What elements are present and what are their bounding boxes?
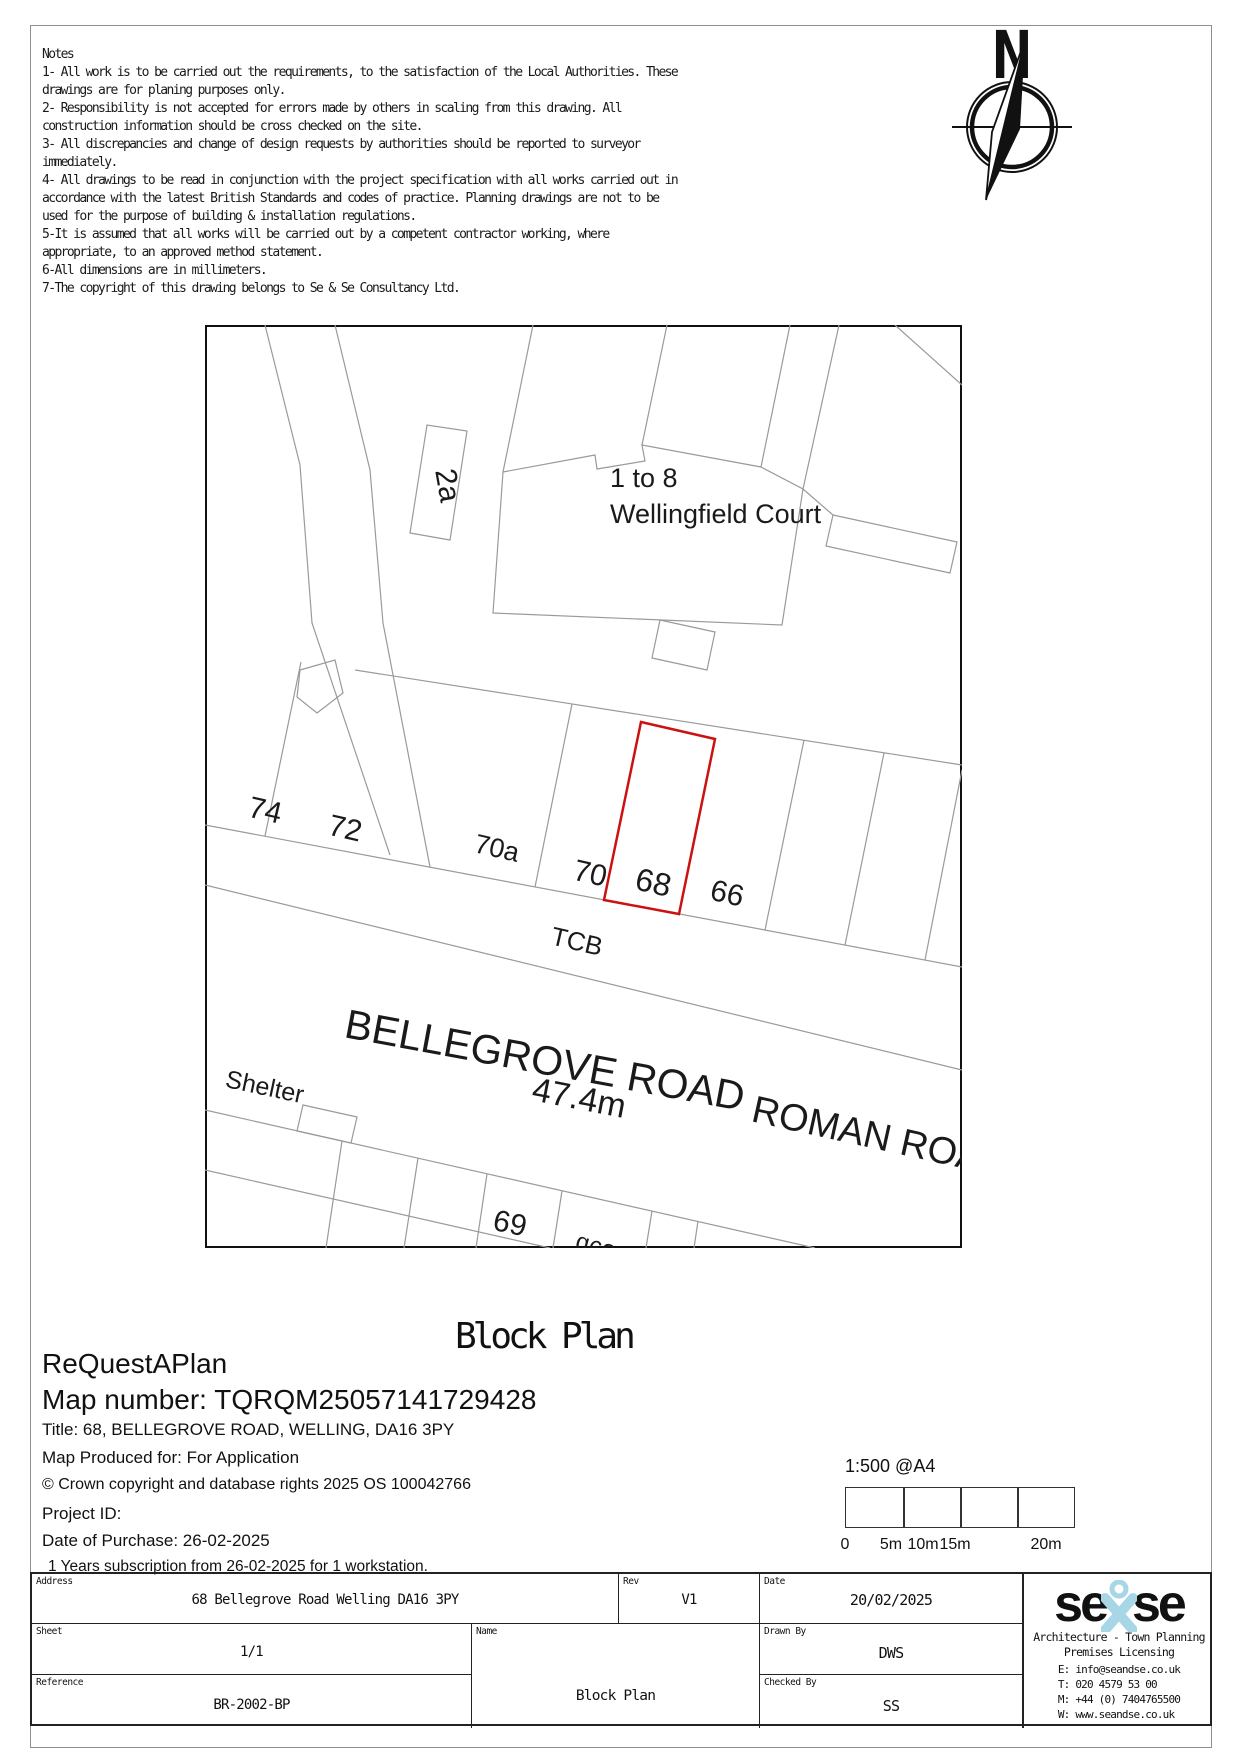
- notes-title: Notes: [42, 46, 742, 64]
- address-value: 68 Bellegrove Road Welling DA16 3PY: [32, 1592, 618, 1608]
- note-line: appropriate, to an approved method state…: [42, 244, 742, 262]
- reference-cell: Reference BR-2002-BP: [32, 1675, 472, 1728]
- note-line: accordance with the latest British Stand…: [42, 190, 742, 208]
- address-cell: Address 68 Bellegrove Road Welling DA16 …: [32, 1574, 619, 1624]
- note-line: 1- All work is to be carried out the req…: [42, 64, 742, 82]
- scale-bar: [845, 1487, 1075, 1528]
- purchase-date-line: Date of Purchase: 26-02-2025: [42, 1531, 270, 1551]
- notes-block: Notes 1- All work is to be carried out t…: [42, 46, 742, 298]
- map-label-70a: 70a: [472, 829, 524, 869]
- scale-caption: 1:500 @A4: [845, 1456, 935, 1477]
- map-label-69: 69: [490, 1204, 530, 1243]
- note-line: construction information should be cross…: [42, 118, 742, 136]
- produced-for-line: Map Produced for: For Application: [42, 1448, 299, 1468]
- logo-mobile: M: +44 (0) 7404765500: [1058, 1692, 1180, 1707]
- rev-value: V1: [619, 1592, 759, 1608]
- scale-bar-divider: [960, 1488, 962, 1527]
- scale-bar-divider: [1017, 1488, 1019, 1527]
- rev-cell: Rev V1: [619, 1574, 760, 1624]
- drawn-by-value: DWS: [760, 1644, 1022, 1662]
- date-cell: Date 20/02/2025: [760, 1574, 1022, 1624]
- name-value: Block Plan: [472, 1688, 759, 1704]
- title-block: Address 68 Bellegrove Road Welling DA16 …: [30, 1572, 1212, 1726]
- address-label: Address: [36, 1576, 73, 1587]
- note-line: used for the purpose of building & insta…: [42, 208, 742, 226]
- scale-tick-15m: 15m: [939, 1536, 970, 1554]
- logo-contacts: E: info@seandse.co.uk T: 020 4579 53 00 …: [1058, 1662, 1180, 1722]
- drawn-by-cell: Drawn By DWS: [760, 1624, 1022, 1675]
- note-line: drawings are for planing purposes only.: [42, 82, 742, 100]
- checked-by-cell: Checked By SS: [760, 1675, 1022, 1728]
- reference-label: Reference: [36, 1677, 83, 1688]
- name-label: Name: [476, 1626, 497, 1637]
- logo-phone: T: 020 4579 53 00: [1058, 1677, 1180, 1692]
- date-label: Date: [764, 1576, 785, 1587]
- note-line: 5-It is assumed that all works will be c…: [42, 226, 742, 244]
- note-line: 2- Responsibility is not accepted for er…: [42, 100, 742, 118]
- map-label-66: 66: [707, 874, 747, 914]
- map-label-70: 70: [570, 854, 610, 894]
- company-logo-cell: se se Architecture - Town Planning Premi…: [1022, 1574, 1214, 1728]
- scale-tick-10m: 10m: [907, 1536, 938, 1554]
- scale-tick-5m: 5m: [880, 1536, 902, 1554]
- note-line: 6-All dimensions are in millimeters.: [42, 262, 742, 280]
- drawing-sheet: Notes 1- All work is to be carried out t…: [0, 0, 1240, 1755]
- scale-bar-divider: [903, 1488, 905, 1527]
- seandse-logo: se se: [1054, 1578, 1184, 1630]
- drawing-title: Block Plan: [455, 1316, 632, 1357]
- logo-tagline-2: Premises Licensing: [1064, 1645, 1174, 1660]
- copyright-line: © Crown copyright and database rights 20…: [42, 1476, 471, 1494]
- name-cell: Name Block Plan: [472, 1624, 760, 1728]
- map-label-building: Wellingfield Court: [610, 499, 822, 529]
- note-line: immediately.: [42, 154, 742, 172]
- note-line: 7-The copyright of this drawing belongs …: [42, 280, 742, 298]
- note-line: 4- All drawings to be read in conjunctio…: [42, 172, 742, 190]
- logo-tagline-1: Architecture - Town Planning: [1033, 1630, 1204, 1645]
- logo-web: W: www.seandse.co.uk: [1058, 1707, 1180, 1722]
- site-title-line: Title: 68, BELLEGROVE ROAD, WELLING, DA1…: [42, 1420, 454, 1440]
- map-label-unit-range: 1 to 8: [610, 463, 678, 493]
- logo-ampersand-icon: [1101, 1580, 1137, 1632]
- block-plan-map: 2a 1 to 8 Wellingfield Court 74 72 70a 7…: [205, 325, 962, 1253]
- sheet-label: Sheet: [36, 1626, 62, 1637]
- map-label-shelter: Shelter: [223, 1065, 306, 1109]
- map-label-2a: 2a: [428, 466, 466, 505]
- map-label-road-roman: ROMAN ROAD: [748, 1089, 962, 1187]
- sheet-cell: Sheet 1/1: [32, 1624, 472, 1675]
- map-label-72: 72: [325, 809, 365, 849]
- reference-value: BR-2002-BP: [32, 1697, 471, 1713]
- drawn-by-label: Drawn By: [764, 1626, 806, 1637]
- sheet-value: 1/1: [32, 1644, 471, 1660]
- logo-email: E: info@seandse.co.uk: [1058, 1662, 1180, 1677]
- map-number: Map number: TQRQM25057141729428: [42, 1384, 536, 1416]
- logo-word-right: se: [1132, 1578, 1184, 1630]
- logo-word-left: se: [1054, 1578, 1106, 1630]
- checked-by-label: Checked By: [764, 1677, 816, 1688]
- checked-by-value: SS: [760, 1697, 1022, 1715]
- project-id-line: Project ID:: [42, 1504, 121, 1524]
- map-label-tcb: TCB: [548, 921, 605, 962]
- date-value: 20/02/2025: [760, 1591, 1022, 1609]
- north-arrow-icon: N: [950, 28, 1074, 211]
- brand-title: ReQuestAPlan: [42, 1348, 227, 1380]
- rev-label: Rev: [623, 1576, 639, 1587]
- scale-tick-20m: 20m: [1030, 1536, 1061, 1554]
- scale-tick-0: 0: [841, 1536, 850, 1554]
- map-label-68: 68: [632, 861, 675, 904]
- map-label-74: 74: [245, 791, 285, 831]
- map-label-59b: 59b: [572, 1230, 618, 1248]
- note-line: 3- All discrepancies and change of desig…: [42, 136, 742, 154]
